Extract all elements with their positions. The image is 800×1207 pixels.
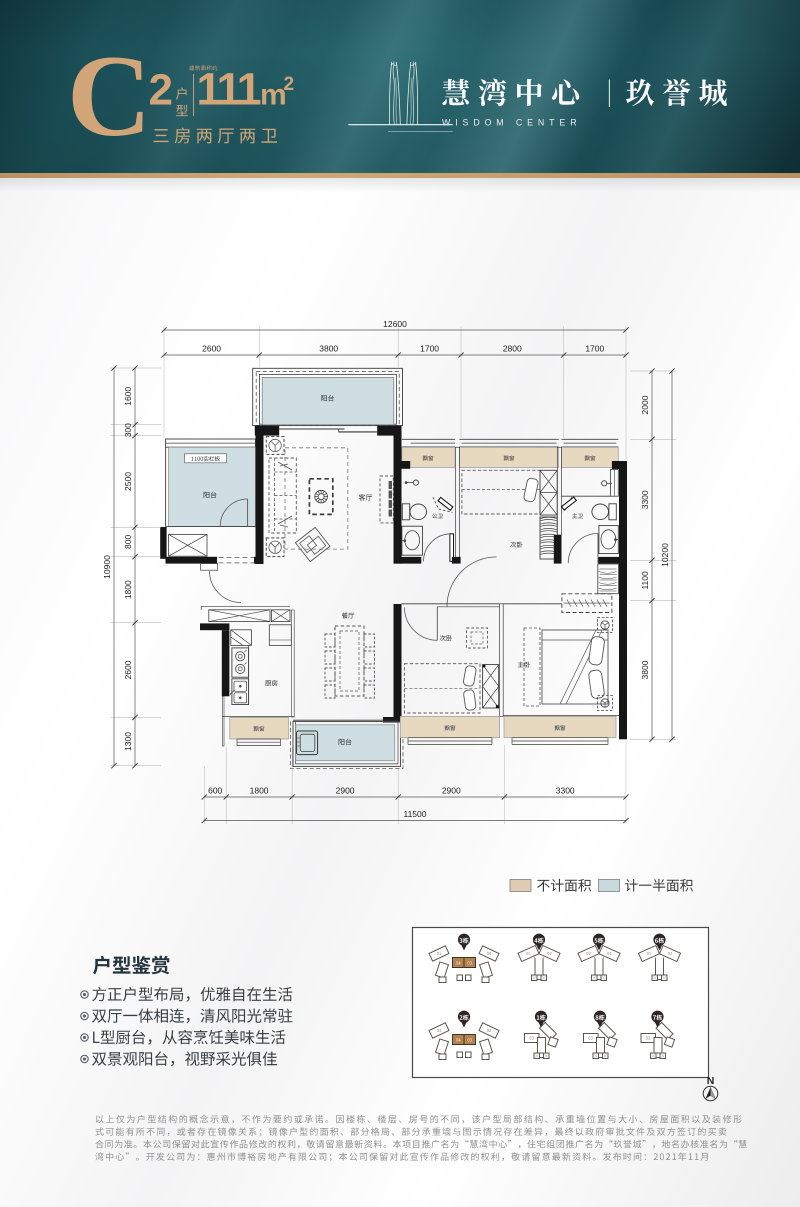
svg-text:3300: 3300	[640, 490, 650, 509]
svg-text:1700: 1700	[585, 344, 604, 354]
svg-text:2900: 2900	[336, 786, 355, 796]
svg-text:N: N	[707, 1075, 715, 1087]
svg-text:111: 111	[197, 64, 261, 115]
svg-text:10200: 10200	[660, 543, 670, 567]
svg-text:1300: 1300	[123, 732, 133, 751]
svg-text:2600: 2600	[123, 660, 133, 679]
svg-text:3800: 3800	[319, 344, 338, 354]
svg-text:1100: 1100	[640, 571, 650, 590]
svg-text:2: 2	[149, 66, 173, 115]
svg-text:2500: 2500	[123, 472, 133, 491]
svg-text:600: 600	[208, 786, 222, 796]
svg-text:800: 800	[123, 535, 133, 549]
svg-text:2: 2	[284, 74, 295, 95]
svg-text:2900: 2900	[442, 786, 461, 796]
svg-text:12600: 12600	[383, 319, 407, 329]
svg-text:2600: 2600	[202, 344, 221, 354]
svg-text:1800: 1800	[250, 786, 269, 796]
svg-text:3300: 3300	[556, 786, 575, 796]
svg-text:10900: 10900	[102, 555, 112, 579]
svg-text:2000: 2000	[640, 395, 650, 414]
svg-text:300: 300	[123, 423, 133, 437]
svg-text:1700: 1700	[420, 344, 439, 354]
svg-text:1600: 1600	[123, 387, 133, 406]
svg-text:11500: 11500	[403, 809, 426, 819]
svg-text:3800: 3800	[640, 660, 650, 679]
svg-text:1800: 1800	[123, 580, 133, 599]
svg-text:WISDOM CENTER: WISDOM CENTER	[442, 118, 581, 128]
svg-text:2800: 2800	[503, 344, 522, 354]
svg-text:C: C	[67, 32, 152, 161]
